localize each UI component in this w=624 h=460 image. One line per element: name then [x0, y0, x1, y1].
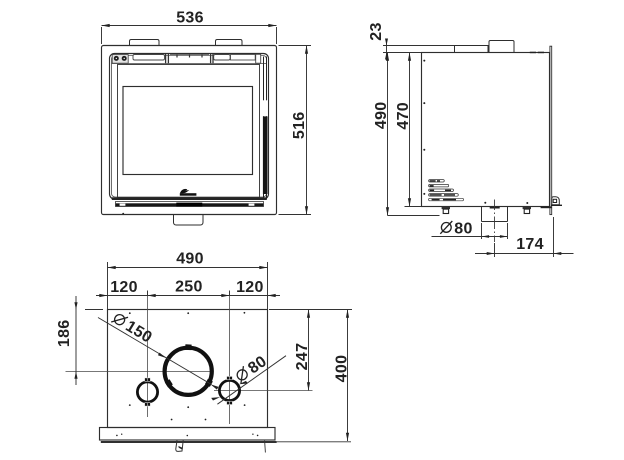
- svg-text:400: 400: [334, 355, 351, 383]
- svg-text:80: 80: [454, 221, 472, 238]
- svg-text:516: 516: [291, 111, 308, 139]
- svg-text:536: 536: [176, 9, 204, 26]
- svg-text:120: 120: [110, 279, 138, 296]
- svg-text:470: 470: [395, 102, 412, 130]
- svg-text:23: 23: [368, 22, 385, 40]
- svg-text:186: 186: [56, 319, 73, 347]
- svg-text:120: 120: [236, 279, 264, 296]
- svg-text:250: 250: [175, 278, 203, 295]
- svg-text:174: 174: [516, 236, 544, 253]
- svg-text:490: 490: [373, 101, 390, 129]
- svg-text:247: 247: [294, 343, 311, 371]
- svg-text:490: 490: [176, 251, 204, 268]
